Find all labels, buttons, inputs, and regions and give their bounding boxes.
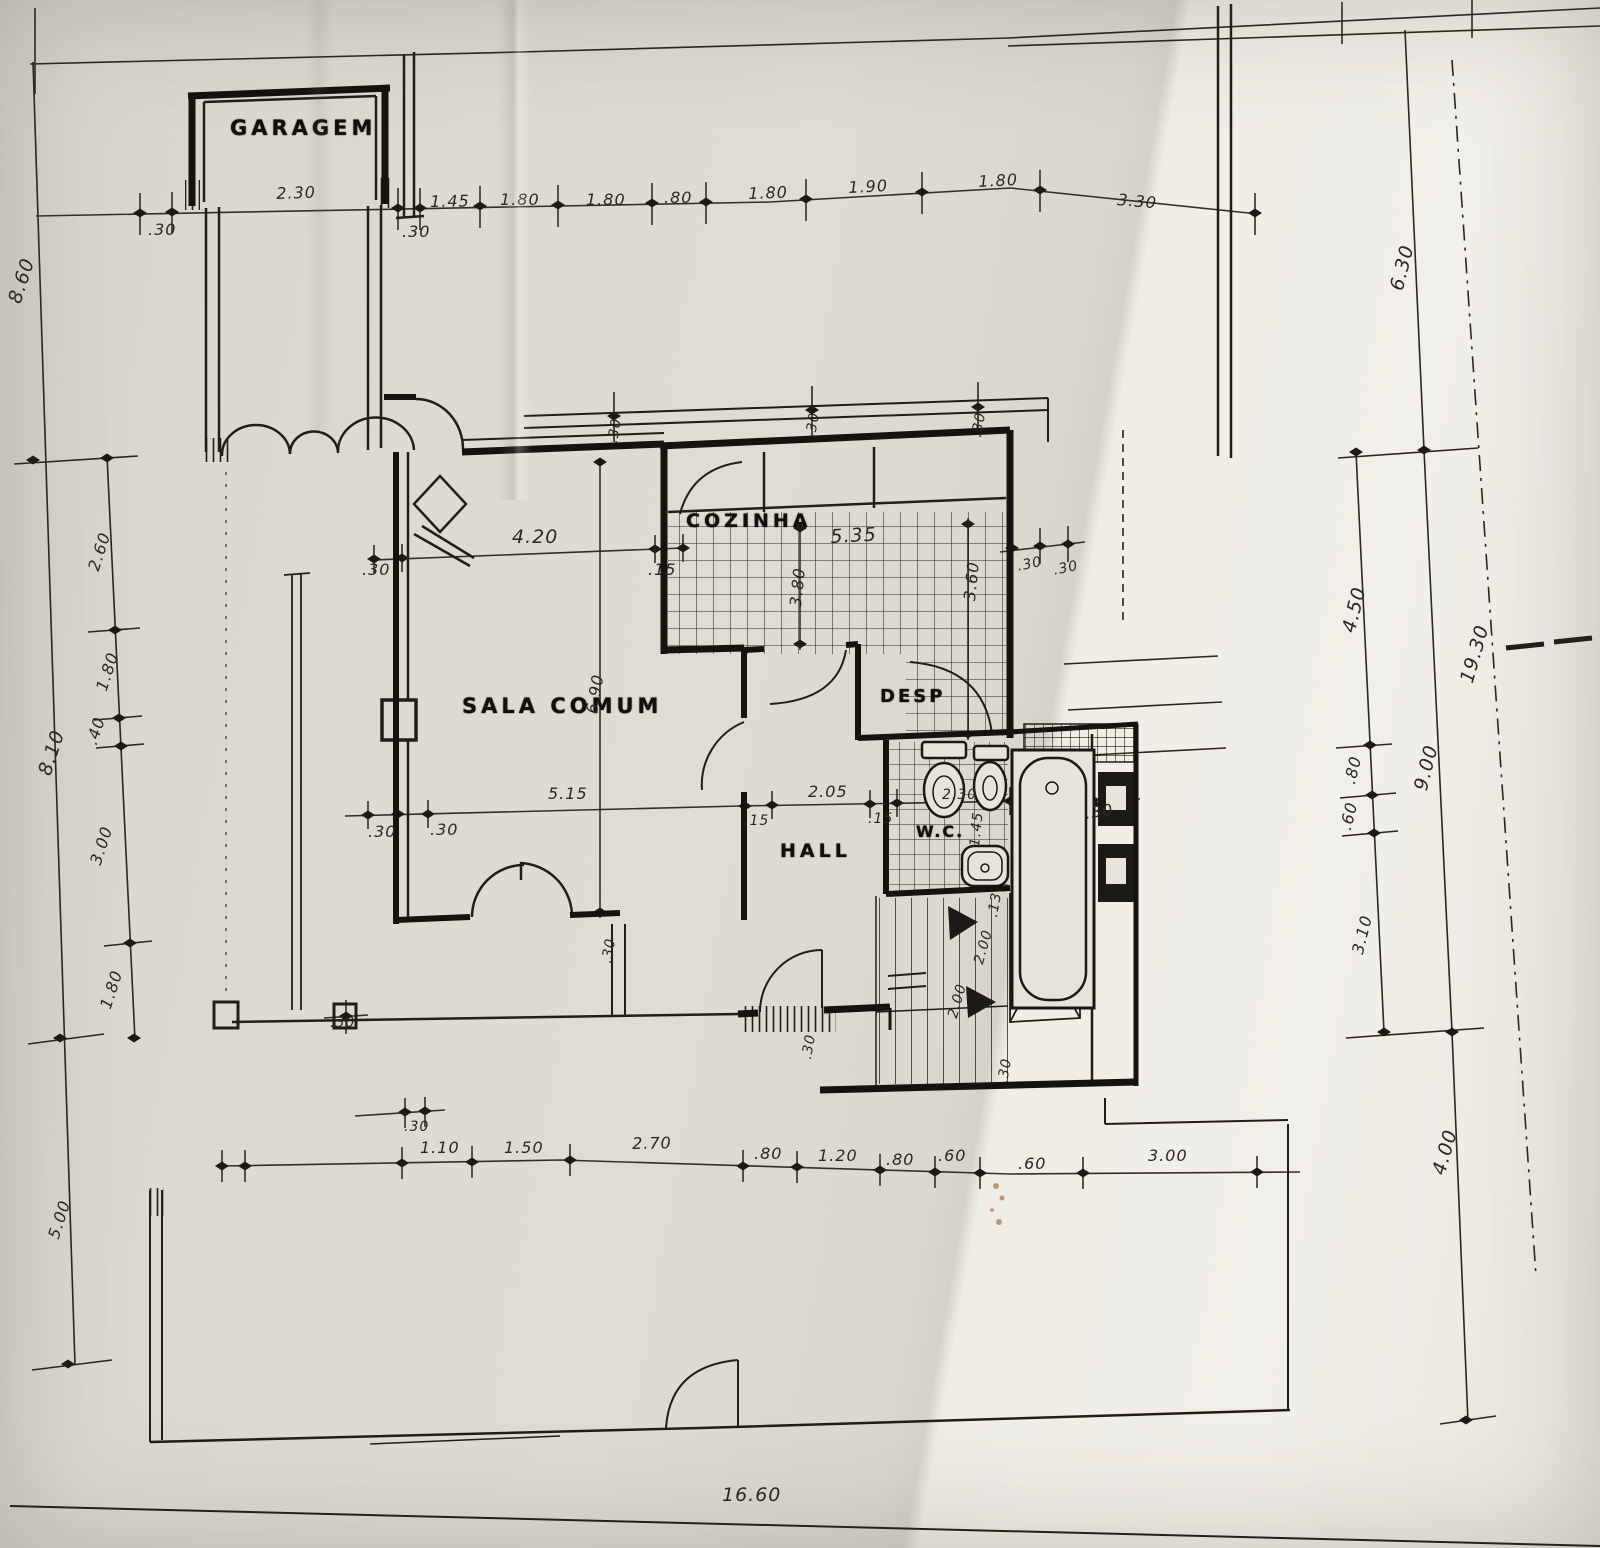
dim-top-9: 1.80	[978, 172, 1018, 190]
dim-int-21: .13	[986, 891, 1004, 918]
dim-bottom-9: 3.00	[1148, 1148, 1188, 1164]
dim-bottom-5: 1.20	[818, 1148, 858, 1164]
dim-int-15: .15	[744, 814, 769, 828]
dim-int-3: 5.35	[830, 526, 877, 547]
dim-int-25: .30	[996, 1057, 1014, 1084]
dim-top-0: .30	[148, 222, 176, 238]
room-label-pantry: DESP	[880, 688, 945, 706]
dim-int-24: .30	[800, 1033, 818, 1060]
dim-int-27: .30	[600, 937, 618, 964]
dim-int-18: 2.30	[942, 788, 977, 802]
dim-top-7: 1.80	[748, 185, 788, 202]
dim-top-4: 1.80	[500, 192, 540, 208]
dim-int-19: 1.45	[968, 811, 986, 847]
dim-int-17: .15	[868, 812, 893, 826]
room-label-wc: W.C.	[916, 824, 964, 840]
dim-int-20: .30	[1084, 802, 1114, 822]
dim-bottom-0: .30	[404, 1120, 429, 1134]
dim-bottom-8: .60	[1018, 1156, 1046, 1172]
dim-overall-width: 16.60	[722, 1486, 781, 1505]
dim-bottom-1: 1.10	[420, 1140, 460, 1156]
dim-int-0: 4.20	[512, 528, 558, 547]
room-label-kitchen: COZINHA	[686, 512, 811, 531]
dim-int-9: .30	[970, 411, 988, 438]
dim-top-2: .30	[402, 224, 430, 240]
dim-bottom-3: 2.70	[632, 1135, 672, 1152]
dim-bottom-2: 1.50	[504, 1140, 544, 1156]
dim-bottom-4: .80	[754, 1146, 782, 1162]
dim-int-12: .30	[368, 824, 396, 840]
dim-top-1: 2.30	[276, 185, 316, 202]
dim-top-3: 1.45	[430, 193, 470, 210]
dim-int-2: .15	[648, 562, 676, 578]
dim-int-4: 3.80	[788, 567, 808, 608]
dim-int-1: .30	[362, 562, 390, 578]
dim-top-5: 1.80	[586, 192, 626, 208]
dim-int-16: 2.05	[808, 784, 848, 800]
dim-int-7: .30	[606, 417, 624, 444]
dim-top-10: 3.30	[1117, 192, 1158, 211]
dim-int-13: .30	[430, 822, 458, 838]
room-label-garage: GARAGEM	[230, 118, 376, 139]
dim-int-8: .30	[804, 411, 822, 438]
dim-top-6: .80	[664, 190, 692, 206]
room-label-living: SALA COMUM	[462, 696, 662, 717]
dim-int-26: .30	[330, 1016, 355, 1030]
dim-bottom-6: .80	[886, 1152, 914, 1168]
room-label-hall: HALL	[780, 842, 851, 861]
dim-top-8: 1.90	[848, 178, 888, 196]
dim-bottom-7: .60	[938, 1148, 966, 1164]
dim-int-5: 3.60	[962, 561, 982, 602]
floor-plan-photo: GARAGEM COZINHA SALA COMUM DESP HALL W.C…	[0, 0, 1600, 1548]
dim-int-14: 5.15	[548, 786, 588, 802]
